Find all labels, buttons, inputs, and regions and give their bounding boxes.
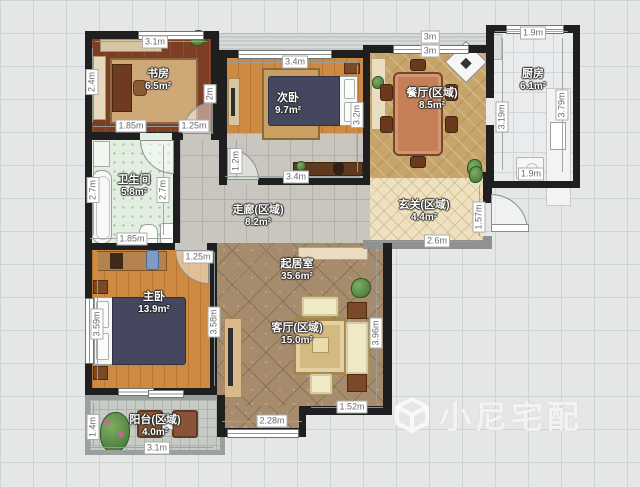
room-label-entrance: 玄关(区域) 4.4m² [376,199,472,224]
wall-kitchen-right [573,25,580,188]
master-nightstand-2[interactable] [93,366,108,380]
bed2-decor-item[interactable] [333,162,344,175]
room-name: 卫生间 [86,174,182,187]
room-label-bathroom: 卫生间 5.8m² [86,174,182,199]
room-name: 主卧 [106,291,202,304]
dim-label: 1.25m [178,120,209,133]
dining-chair-5[interactable] [410,59,426,71]
room-area: 15.0m² [249,335,345,347]
dim-label: 3.1m [144,442,170,455]
room-label-bedroom2: 次卧 9.7m² [240,92,336,117]
dining-chair-2[interactable] [380,116,393,133]
room-label-corridor: 走廊(区域) 8.2m² [210,204,306,229]
dim-label: 3.2m [351,102,364,128]
dining-chair-6[interactable] [410,156,426,168]
room-name: 阳台(区域) [107,414,203,427]
master-chair[interactable] [146,250,159,270]
room-label-living-zone: 起居室 35.6m² [249,258,345,283]
bed2-tv[interactable] [231,88,235,116]
plant-bed2[interactable] [296,161,306,171]
door-gap-kitchen [486,98,494,125]
watermark: 小尼宅配 [393,392,583,438]
window-living-bump [227,429,299,438]
tv[interactable] [228,328,233,386]
entry-door-leaf[interactable] [491,224,529,232]
armchair[interactable] [309,373,333,395]
floorplan-canvas: { "watermark": { "brand": "小尼宅配", "logo"… [0,0,640,487]
end-table-2[interactable] [347,374,367,392]
dim-label: 3m [421,45,440,58]
kitchen-sink[interactable] [550,122,566,150]
wall-kitchen-bottom [486,181,580,188]
wall-bed2-right [363,50,370,185]
dim-label: 3.19m [496,101,509,132]
dim-label: 3.58m [208,306,221,337]
corner-cabinet-item [460,58,471,69]
dim-label: 1.4m [87,414,100,440]
room-area: 6.5m² [110,81,206,93]
dim-label: 1.9m [518,168,544,181]
cube-logo-icon [393,396,431,434]
room-name: 餐厅(区域) [384,87,480,100]
dim-label: 1.9m [520,27,546,40]
dim-label: 3.59m [91,308,104,339]
dim-label: 1.2m [230,148,243,174]
end-table-1[interactable] [347,302,367,319]
dining-chair-4[interactable] [445,116,458,133]
room-label-kitchen: 厨房 6.1m² [485,68,581,93]
room-name: 客厅(区域) [249,322,345,335]
dim-label: 2.4m [86,69,99,95]
room-area: 8.2m² [210,217,306,229]
master-desk-item[interactable] [110,253,123,269]
door-gap-bath [140,133,172,140]
dim-label: 2.28m [256,415,287,428]
dim-label: 1.25m [182,251,213,264]
loveseat[interactable] [301,296,339,317]
balcony-slider-door-2[interactable] [148,390,184,398]
dim-label: 2.6m [424,235,450,248]
room-area: 8.5m² [384,100,480,112]
room-label-dining: 餐厅(区域) 8.5m² [384,87,480,112]
sofa-main[interactable] [345,321,369,375]
room-name: 起居室 [249,258,345,271]
bed2-pillow-1[interactable] [344,79,355,99]
dim-label: 1.85m [116,233,147,246]
wall-living-right [383,243,392,415]
room-label-master: 主卧 13.9m² [106,291,202,316]
watermark-text: 小尼宅配 [439,392,583,438]
dim-label: 3.4m [282,56,308,69]
room-label-balcony: 阳台(区域) 4.0m² [107,414,203,439]
room-name: 书房 [110,68,206,81]
room-area: 9.7m² [240,105,336,117]
room-area: 4.4m² [376,212,472,224]
room-area: 13.9m² [106,304,202,316]
room-name: 厨房 [485,68,581,81]
wall-bed2-left [219,50,227,185]
dim-label: 1.85m [115,120,146,133]
room-area: 4.0m² [107,427,203,439]
plant-entrance[interactable] [469,166,483,183]
room-name: 走廊(区域) [210,204,306,217]
dim-label: 3.1m [142,36,168,49]
dining-table[interactable] [393,72,443,156]
room-label-study: 书房 6.5m² [110,68,206,93]
tv-cabinet[interactable] [224,318,242,398]
dim-label: 1.52m [336,401,367,414]
room-area: 6.1m² [485,81,581,93]
dim-label: 3.79m [556,89,569,120]
dim-label: 1.57m [473,201,486,232]
wall-entry-post [483,236,492,249]
dim-label: 3m [421,31,440,44]
room-name: 次卧 [240,92,336,105]
room-area: 35.6m² [249,271,345,283]
room-area: 5.8m² [86,187,182,199]
room-name: 玄关(区域) [376,199,472,212]
washing-machine[interactable] [93,141,110,167]
door-gap-master [175,243,207,250]
plant-living[interactable] [351,278,371,298]
dim-label: 3.96m [370,317,383,348]
dim-label: 3.4m [283,171,309,184]
room-label-livingroom: 客厅(区域) 15.0m² [249,322,345,347]
